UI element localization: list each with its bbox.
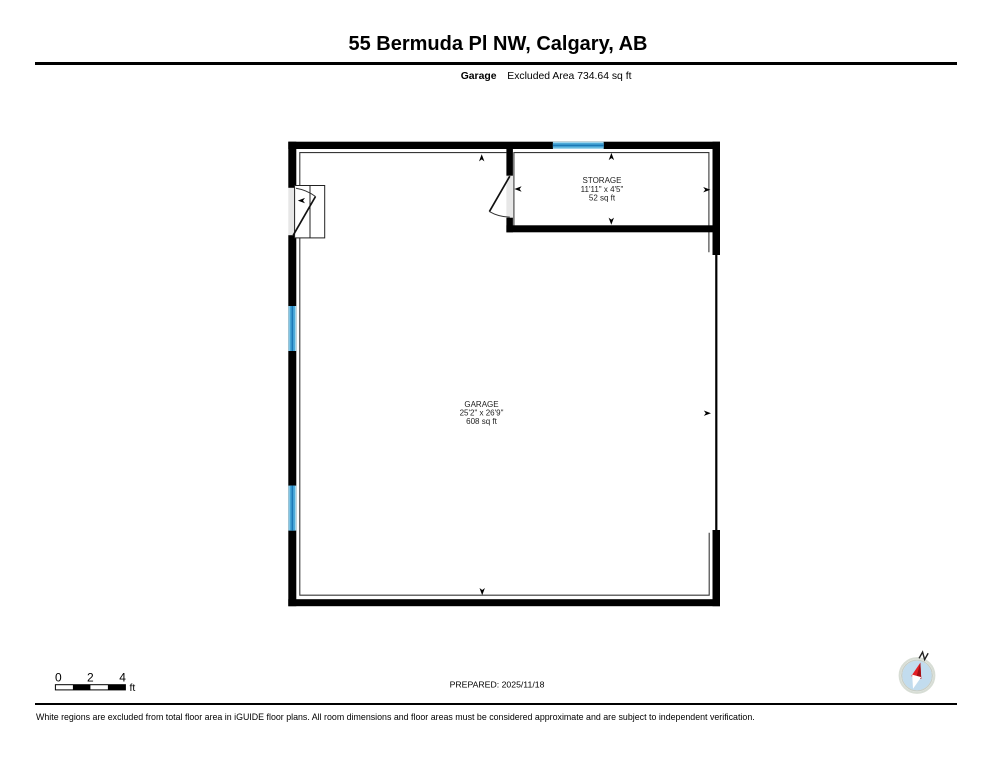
- svg-text:4: 4: [119, 671, 126, 685]
- svg-text:608 sq ft: 608 sq ft: [466, 417, 497, 426]
- svg-text:ft: ft: [130, 682, 136, 694]
- svg-text:PREPARED: 2025/11/18: PREPARED: 2025/11/18: [450, 680, 545, 690]
- svg-text:0: 0: [55, 671, 62, 685]
- svg-text:STORAGE: STORAGE: [583, 176, 622, 185]
- svg-text:52 sq ft: 52 sq ft: [589, 193, 616, 202]
- svg-text:2: 2: [87, 671, 94, 685]
